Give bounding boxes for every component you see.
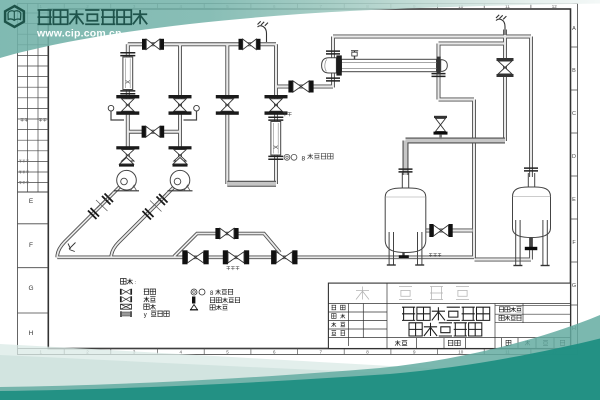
svg-text:10: 10: [458, 349, 464, 354]
svg-text:y: y: [144, 313, 147, 319]
svg-text:D: D: [572, 154, 576, 160]
svg-text:www.cip.com.cn: www.cip.com.cn: [36, 28, 122, 40]
svg-text:A: A: [572, 26, 576, 32]
svg-text:12: 12: [552, 4, 558, 9]
svg-text:G: G: [28, 285, 33, 292]
svg-text:G: G: [572, 283, 576, 289]
svg-text:8: 8: [302, 155, 306, 162]
svg-text:H: H: [29, 330, 34, 337]
svg-text:C: C: [572, 111, 576, 117]
svg-text:F: F: [29, 242, 33, 249]
svg-text:B: B: [572, 68, 576, 74]
svg-text:E: E: [29, 198, 34, 205]
svg-text:E: E: [572, 197, 576, 203]
svg-text::: :: [135, 280, 136, 286]
